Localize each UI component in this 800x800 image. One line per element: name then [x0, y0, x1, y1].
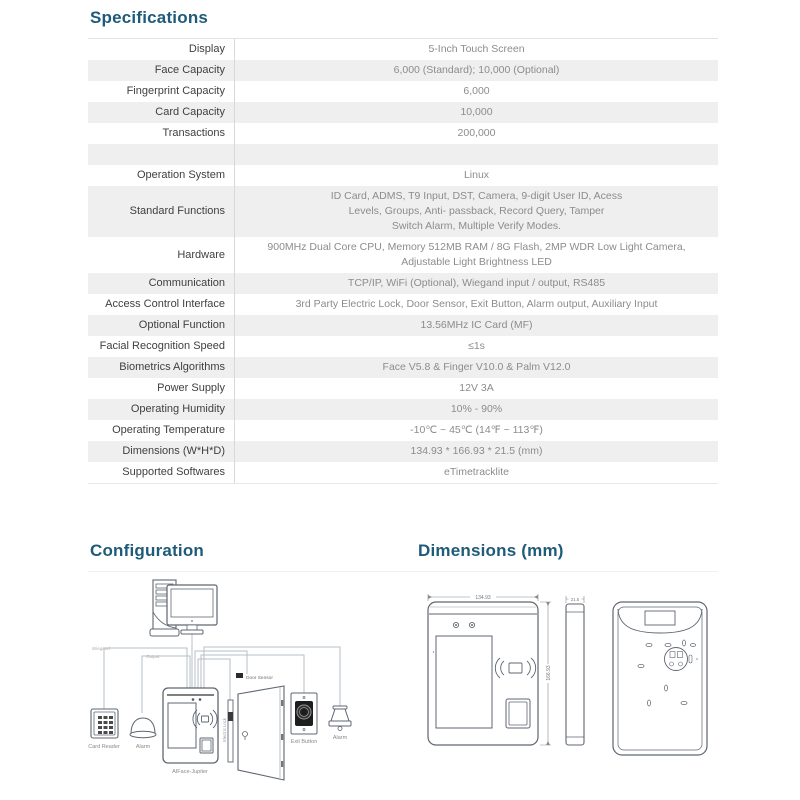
spec-row: Optional Function13.56MHz IC Card (MF): [88, 315, 718, 336]
spec-row-value: 900MHz Dual Core CPU, Memory 512MB RAM /…: [235, 237, 718, 273]
spec-row: Supported SoftwareseTimetracklite: [88, 462, 718, 483]
spec-row: Operation SystemLinux: [88, 165, 718, 186]
spec-row: Standard FunctionsID Card, ADMS, T9 Inpu…: [88, 186, 718, 237]
spec-row-value: 200,000: [235, 123, 718, 144]
width-dimension-label: 134.93: [475, 595, 491, 601]
computer-icon: [150, 580, 217, 636]
dimensions-diagram: 134.93 166.93 21.5: [415, 585, 720, 770]
spec-row-label: Operation System: [88, 165, 235, 186]
spec-row: Display5-Inch Touch Screen: [88, 39, 718, 60]
output-label: Output: [146, 654, 160, 659]
device-front-view: [428, 602, 538, 745]
height-dimension-label: 166.93: [546, 665, 552, 681]
wiegand-label: Wiegand: [92, 646, 110, 651]
spec-row: Biometrics AlgorithmsFace V5.8 & Finger …: [88, 357, 718, 378]
spec-row-value: eTimetracklite: [235, 462, 718, 483]
spec-row: Hardware900MHz Dual Core CPU, Memory 512…: [88, 237, 718, 273]
alarm-dome-icon: [130, 718, 156, 738]
spec-row: Card Capacity10,000: [88, 102, 718, 123]
spec-row-value: 13.56MHz IC Card (MF): [235, 315, 718, 336]
spec-row-label: Face Capacity: [88, 60, 235, 81]
spec-row-value: 10,000: [235, 102, 718, 123]
exit-button-icon: [291, 693, 317, 734]
dimensions-title: Dimensions (mm): [418, 541, 564, 561]
exit-button-label: Exit Button: [291, 739, 318, 745]
spec-row-value: 5-Inch Touch Screen: [235, 39, 718, 60]
spec-row-value: TCP/IP, WiFi (Optional), Wiegand input /…: [235, 273, 718, 294]
spec-row-label: Biometrics Algorithms: [88, 357, 235, 378]
spec-row: Fingerprint Capacity6,000: [88, 81, 718, 102]
spec-row-value: 3rd Party Electric Lock, Door Sensor, Ex…: [235, 294, 718, 315]
spec-row-label: Dimensions (W*H*D): [88, 441, 235, 462]
spec-row-value: 6,000 (Standard); 10,000 (Optional): [235, 60, 718, 81]
spec-row: Facial Recognition Speed≤1s: [88, 336, 718, 357]
card-reader-label: Card Reader: [88, 744, 120, 750]
alarm-left-label: Alarm: [136, 744, 151, 750]
spec-row: Power Supply12V 3A: [88, 378, 718, 399]
spec-row-label: Operating Temperature: [88, 420, 235, 441]
spec-row-label: Optional Function: [88, 315, 235, 336]
depth-dimension-label: 21.5: [571, 597, 580, 602]
card-reader-icon: [91, 709, 118, 738]
electric-lock-label: Electric Lock: [222, 717, 227, 742]
door-icon: [228, 673, 284, 780]
device-side-view: [566, 604, 584, 745]
aiface-device-label: AIFace-Jupiter: [172, 769, 208, 775]
device-back-view: [613, 602, 707, 755]
alarm-right-label: Alarm: [333, 735, 348, 741]
spec-row: Operating Humidity10% - 90%: [88, 399, 718, 420]
spec-row: Dimensions (W*H*D)134.93 * 166.93 * 21.5…: [88, 441, 718, 462]
spec-row-label: Communication: [88, 273, 235, 294]
spec-row-value: [235, 144, 718, 165]
aiface-device-icon: [163, 688, 218, 763]
spec-row: Access Control Interface3rd Party Electr…: [88, 294, 718, 315]
alarm-siren-icon: [329, 706, 351, 731]
spec-row-label: Hardware: [88, 237, 235, 273]
spec-row-value: 134.93 * 166.93 * 21.5 (mm): [235, 441, 718, 462]
spec-row-label: Card Capacity: [88, 102, 235, 123]
configuration-diagram: Wiegand Output: [80, 570, 380, 798]
spec-row: CommunicationTCP/IP, WiFi (Optional), Wi…: [88, 273, 718, 294]
spec-row-value: 10% - 90%: [235, 399, 718, 420]
spec-row: Operating Temperature-10℃ ~ 45℃ (14℉ ~ 1…: [88, 420, 718, 441]
spec-sheet-page: Specifications Display5-Inch Touch Scree…: [0, 0, 800, 800]
spec-row-label: Power Supply: [88, 378, 235, 399]
door-sensor-label: Door Sensor: [246, 675, 273, 681]
spec-row-label: [88, 144, 235, 165]
spec-row-label: Operating Humidity: [88, 399, 235, 420]
spec-row-label: Fingerprint Capacity: [88, 81, 235, 102]
specifications-title: Specifications: [90, 8, 208, 28]
spec-row: [88, 144, 718, 165]
spec-row-value: 6,000: [235, 81, 718, 102]
spec-row-label: Access Control Interface: [88, 294, 235, 315]
spec-row: Face Capacity6,000 (Standard); 10,000 (O…: [88, 60, 718, 81]
spec-row-label: Supported Softwares: [88, 462, 235, 483]
configuration-title: Configuration: [90, 541, 204, 561]
spec-row-label: Display: [88, 39, 235, 60]
spec-row-label: Transactions: [88, 123, 235, 144]
spec-row-value: ≤1s: [235, 336, 718, 357]
spec-row-value: Face V5.8 & Finger V10.0 & Palm V12.0: [235, 357, 718, 378]
spec-row-value: 12V 3A: [235, 378, 718, 399]
spec-row-label: Standard Functions: [88, 186, 235, 237]
specifications-table: Display5-Inch Touch ScreenFace Capacity6…: [88, 38, 718, 484]
spec-row-value: Linux: [235, 165, 718, 186]
spec-row-value: ID Card, ADMS, T9 Input, DST, Camera, 9-…: [235, 186, 718, 237]
spec-row-label: Facial Recognition Speed: [88, 336, 235, 357]
spec-row: Transactions200,000: [88, 123, 718, 144]
spec-row-value: -10℃ ~ 45℃ (14℉ ~ 113℉): [235, 420, 718, 441]
